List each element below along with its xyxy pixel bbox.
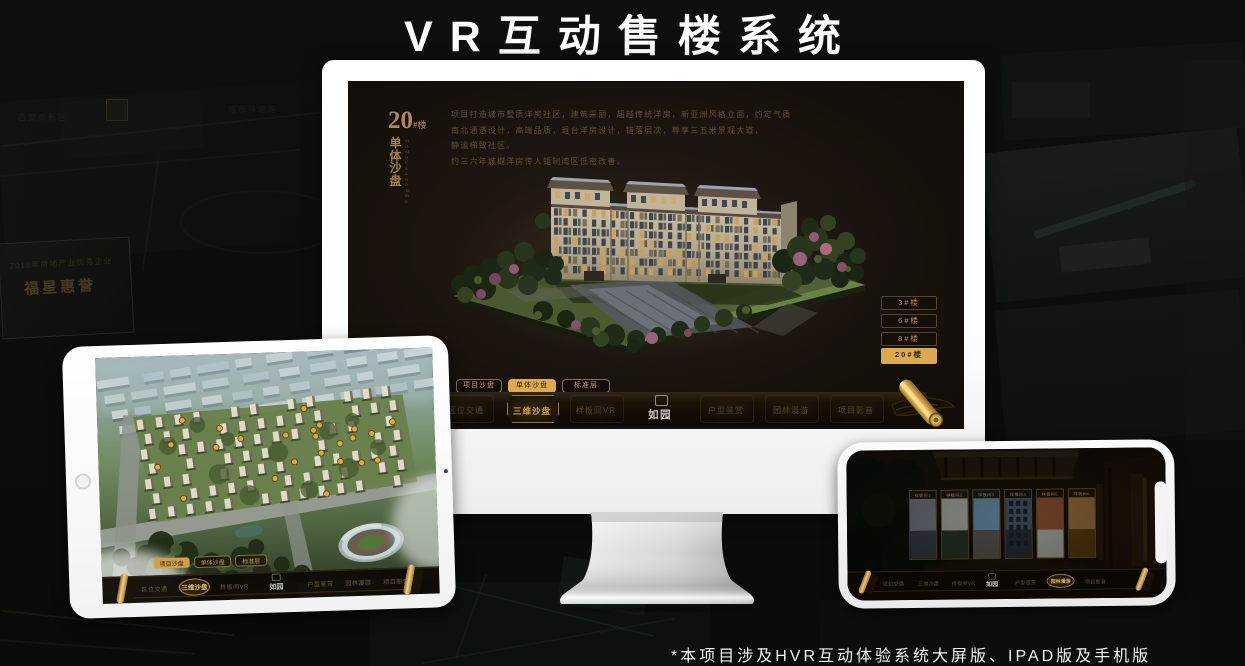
svg-text:户型鉴赏: 户型鉴赏 <box>1015 579 1036 586</box>
svg-text:如园: 如园 <box>269 582 283 591</box>
svg-text:项目影音: 项目影音 <box>1085 578 1106 585</box>
svg-text:三维沙盘: 三维沙盘 <box>918 580 939 587</box>
svg-text:样板间VR: 样板间VR <box>952 580 976 587</box>
svg-text:园林漫游: 园林漫游 <box>1051 578 1071 585</box>
svg-text:如园: 如园 <box>986 580 998 588</box>
svg-text:区位交通: 区位交通 <box>883 581 904 588</box>
